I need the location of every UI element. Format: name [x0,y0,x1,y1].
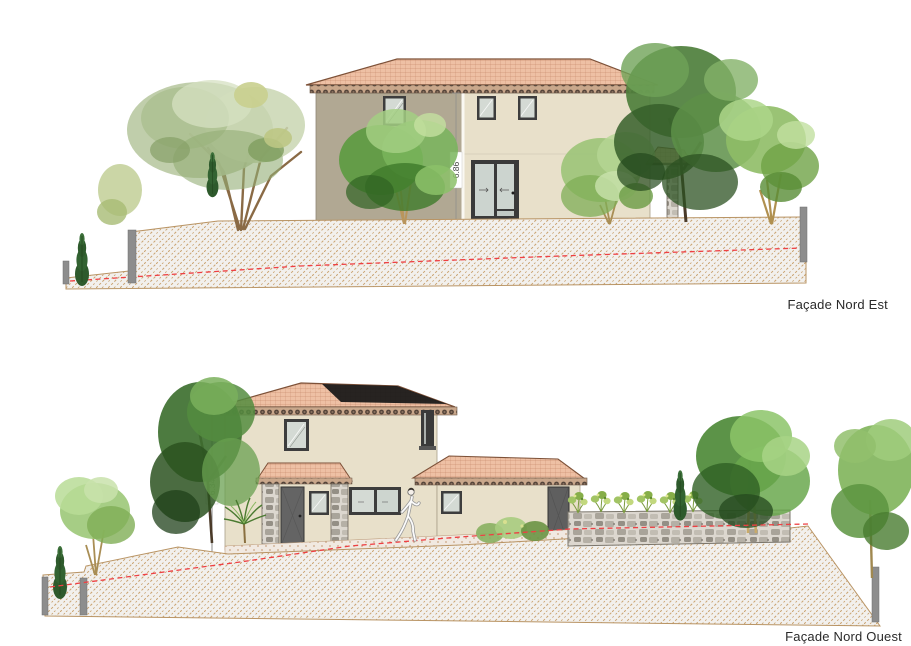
tree-far-right [831,419,911,578]
entrance-porch [256,463,352,544]
facade-label-nord-est: Façade Nord Est [758,297,888,312]
roof-frieze-lower [415,478,587,485]
window-slot [419,410,436,450]
window-upper [284,419,309,451]
cypress-left [75,233,89,286]
stone-pier-right [331,484,348,544]
wall-shrub [614,492,634,513]
terrain-nord-est [63,207,807,289]
window-upper-right [518,96,537,120]
window-beside-door [309,491,329,515]
elevation-drawing: 6.86 [0,0,911,646]
tree-sage-left [97,80,305,230]
window-sliding [349,487,401,515]
terrain-hatch [66,217,806,289]
tree-over-wall [692,410,810,533]
cypress-wall [674,470,687,520]
cypress-bottom-left [53,546,67,599]
boundary-post [80,578,87,615]
roof-main [306,59,658,85]
facade-label-nord-ouest: Façade Nord Ouest [760,629,902,644]
panel-facade-nord-ouest: 6.34 [42,377,911,626]
stone-pier-left [262,484,279,544]
boundary-post [42,577,48,615]
boundary-post [63,261,69,284]
roof-shadow [322,384,447,404]
wall-shrub [637,491,657,512]
roof-lower [413,456,585,479]
boundary-post [800,207,807,262]
boundary-post [128,230,136,283]
wall-shrub [591,491,611,512]
window-lower-wing [441,491,462,514]
glass-door [471,160,519,220]
roof-frieze [310,85,654,93]
window-upper-mid [477,96,496,120]
elevation-sheet: 6.86 [0,0,911,646]
front-door [281,487,304,544]
panel-facade-nord-est: 6.86 [63,43,819,289]
